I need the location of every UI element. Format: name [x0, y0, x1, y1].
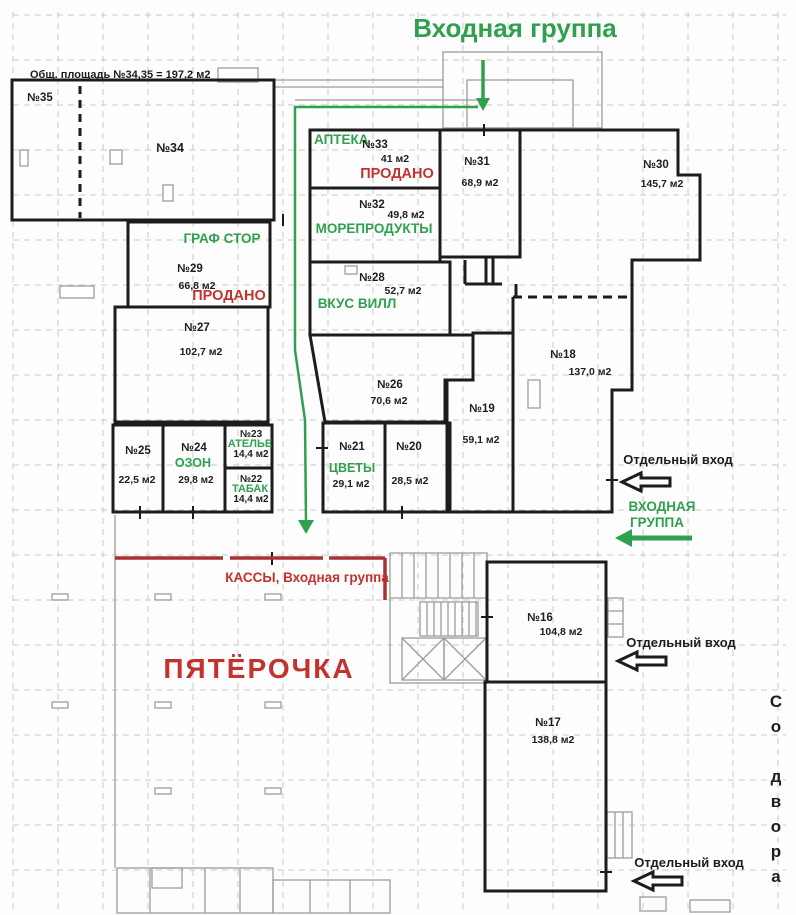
unit-33-tenant: АПТЕКА: [314, 132, 369, 147]
unit-34-number: №34: [156, 141, 184, 155]
unit-24-number: №24: [181, 442, 207, 454]
unit-33-status: ПРОДАНО: [360, 166, 434, 182]
unit-23-area: 14,4 м2: [233, 449, 269, 460]
floor-plan-page: Входная группа Общ. площадь №34,35 = 197…: [0, 0, 796, 915]
unit-29-status: ПРОДАНО: [192, 288, 266, 304]
separate-entrance-arrow-1: [622, 473, 670, 491]
unit-21-tenant: ЦВЕТЫ: [329, 461, 375, 475]
unit-19-room: [447, 333, 513, 512]
unit-21-area: 29,1 м2: [333, 478, 370, 490]
from-yard-label: Со двора: [767, 692, 786, 892]
unit-17-room: [485, 682, 606, 891]
unit-17-number: №17: [535, 717, 561, 729]
exterior-steps-17: [607, 812, 632, 858]
total-area-note: Общ. площадь №34,35 = 197,2 м2: [30, 69, 210, 81]
unit-19-number: №19: [469, 403, 495, 415]
unit-32-area: 49,8 м2: [388, 209, 425, 221]
unit-31-number: №31: [464, 156, 490, 168]
unit-27-number: №27: [184, 322, 210, 334]
unit-25-room: [113, 425, 163, 512]
unit-20-area: 28,5 м2: [392, 475, 429, 487]
technical-core: [390, 553, 487, 683]
unit-33-number: №33: [362, 139, 388, 151]
unit-29-number: №29: [177, 263, 203, 275]
entrance-right-label-line2: ГРУППА: [630, 515, 684, 530]
unit-32-number: №32: [359, 199, 385, 211]
unit-18-area: 137,0 м2: [569, 366, 612, 378]
unit-32-tenant: МОРЕПРОДУКТЫ: [316, 221, 433, 236]
unit-26-number: №26: [377, 379, 403, 391]
floor-plan: Входная группа Общ. площадь №34,35 = 197…: [0, 0, 796, 915]
unit-26-area: 70,6 м2: [371, 395, 408, 407]
separate-entrance-label-3: Отдельный вход: [634, 855, 744, 870]
kassy-label: КАССЫ, Входная группа: [225, 570, 389, 585]
separate-entrance-arrow-3: [634, 872, 682, 890]
unit-16-number: №16: [527, 612, 553, 624]
unit-18-number: №18: [550, 349, 576, 361]
unit-25-number: №25: [125, 445, 151, 457]
entrance-right-label-line1: ВХОДНАЯ: [628, 499, 695, 514]
walk-path-arrow-head: [298, 520, 314, 534]
unit-17-area: 138,8 м2: [532, 734, 575, 746]
unit-28-tenant: ВКУС ВИЛЛ: [318, 296, 397, 311]
pyaterochka-label: ПЯТЁРОЧКА: [163, 653, 354, 684]
unit-24-tenant: ОЗОН: [175, 456, 211, 470]
unit-16-area: 104,8 м2: [540, 626, 583, 638]
unit-22-area: 14,4 м2: [233, 494, 269, 505]
unit-30-number: №30: [643, 159, 669, 171]
unit-19-area: 59,1 м2: [463, 434, 500, 446]
unit-21-number: №21: [339, 441, 365, 453]
unit-35-number: №35: [27, 92, 53, 104]
unit-20-number: №20: [396, 441, 422, 453]
entrance-top-title: Входная группа: [413, 13, 617, 43]
unit-27-area: 102,7 м2: [180, 346, 223, 358]
unit-30-area: 145,7 м2: [641, 178, 684, 190]
unit-33-area: 41 м2: [381, 153, 409, 165]
unit-28-number: №28: [359, 272, 385, 284]
unit-31-area: 68,9 м2: [462, 177, 499, 189]
unit-25-area: 22,5 м2: [119, 474, 156, 486]
unit-24-area: 29,8 м2: [178, 475, 214, 486]
separate-entrance-label-1: Отдельный вход: [623, 452, 733, 467]
entrance-right-arrow-head: [615, 529, 632, 547]
unit-30-room: [520, 130, 700, 297]
exterior-steps-16: [608, 598, 623, 637]
bottom-technical-rooms: [117, 868, 730, 913]
labels-layer: Входная группа Общ. площадь №34,35 = 197…: [27, 13, 785, 892]
separate-entrance-arrow-2: [618, 652, 666, 670]
separate-entrance-label-2: Отдельный вход: [626, 635, 736, 650]
unit-29-tenant: ГРАФ СТОР: [184, 231, 261, 246]
